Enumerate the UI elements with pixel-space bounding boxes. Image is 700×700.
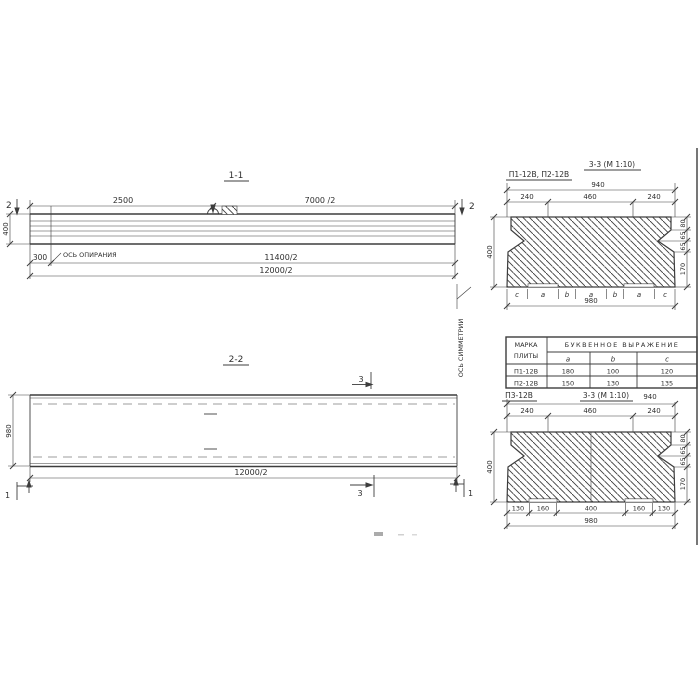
dim-top: 2500 7000 /2 [27, 196, 458, 214]
dim-label: 300 [33, 253, 48, 262]
cut-label: 3 [357, 489, 362, 498]
dim-label: 400 [2, 222, 10, 235]
seg-label: a [541, 291, 545, 299]
cell-mark: П1-12В [514, 368, 538, 376]
table-header-group: БУКВЕННОЕ ВЫРАЖЕНИЕ [565, 341, 680, 349]
section-2-2-title: 2-2 [229, 355, 244, 365]
dim-label: 980 [584, 297, 597, 305]
beam-elevation [30, 214, 455, 244]
dim-label: 980 [584, 517, 597, 525]
dim-bottom: 300 ОСЬ ОПИРАНИЯ 11400/2 12000/2 [27, 206, 458, 279]
recess-hatch [222, 206, 237, 215]
cell-a: 150 [562, 380, 574, 388]
dim-label: 240 [647, 193, 660, 201]
cut-mark-3-top: 3 [352, 372, 372, 389]
section-1-1-title: 1-1 [229, 171, 244, 181]
plate-marks-label: П1-12В, П2-12В [509, 170, 569, 179]
seg-label: a [637, 291, 641, 299]
dim-label: 240 [520, 407, 533, 415]
dim-label: 7000 /2 [305, 196, 336, 205]
table-row: П1-12В 180 100 120 [514, 368, 673, 376]
table-col-a: a [566, 356, 570, 364]
seg-label: b [613, 291, 618, 299]
dim-label: 130 [658, 505, 670, 513]
blueprint-sheet: 1-1 2500 7000 /2 [0, 0, 700, 700]
dim-label: 460 [583, 407, 596, 415]
dim-label: 240 [647, 407, 660, 415]
plate-mark-label: П3-12В [505, 391, 533, 400]
dim-plan-width: 980 [5, 392, 30, 469]
cell-c: 135 [661, 380, 673, 388]
section-1-1: 1-1 2500 7000 /2 [2, 171, 475, 279]
dim-label: 170 [679, 263, 687, 275]
cut-mark-1-right: 1 [450, 479, 473, 498]
cell-b: 130 [607, 380, 619, 388]
dim-980: 980 [504, 516, 678, 529]
dim-label: 80 [679, 219, 687, 227]
dim-label: 940 [643, 393, 656, 401]
cut-mark-3-bottom: 3 [350, 475, 374, 498]
dim-label: 940 [591, 181, 604, 189]
cross-section-shape [507, 217, 675, 287]
cut-mark-1-left: 1 [5, 481, 33, 500]
scan-smudge [374, 532, 417, 536]
marks-table: МАРКА ПЛИТЫ БУКВЕННОЕ ВЫРАЖЕНИЕ a b c П1… [506, 337, 697, 388]
slab-plan [30, 395, 457, 467]
dim-940 [504, 399, 678, 432]
dim-label: 2500 [113, 196, 133, 205]
dim-240-460-240: 240 460 240 [504, 193, 678, 217]
cut-label: 1 [468, 489, 473, 498]
cell-mark: П2-12В [514, 380, 538, 388]
dim-height: 400 [2, 211, 30, 247]
dim-label: 80 [679, 434, 687, 442]
cut-mark-2-right: 2 [460, 199, 475, 214]
symmetry-axis: ОСЬ СИММЕТРИИ [457, 284, 471, 377]
dim-label: 460 [583, 193, 596, 201]
table-col-b: b [611, 356, 616, 364]
section-3-3-bottom: П3-12В 3-3 (М 1:10) 940 240 460 240 [486, 391, 691, 529]
section-3-3-title: 3-3 (М 1:10) [583, 391, 629, 400]
dim-label: 240 [520, 193, 533, 201]
seg-label: b [565, 291, 570, 299]
table-header-col1: МАРКА [514, 341, 538, 349]
dim-label: 130 [512, 505, 524, 513]
cut-label: 1 [5, 491, 10, 500]
dim-label: 11400/2 [264, 253, 297, 262]
section-2-2: 2-2 980 [5, 284, 473, 500]
dim-plan-length: 12000/2 [27, 467, 460, 482]
cell-b: 100 [607, 368, 619, 376]
dim-label: 12000/2 [259, 266, 292, 275]
dim-label: 170 [679, 478, 687, 490]
section-3-3-top: П1-12В, П2-12В 3-3 (М 1:10) 940 240 460 … [486, 160, 691, 310]
table-col-c: c [665, 356, 669, 364]
table-header-col1: ПЛИТЫ [514, 352, 539, 360]
dim-bottom-row: 130 160 400 160 130 [504, 503, 678, 516]
dim-label: 65 [679, 446, 687, 454]
table-row: П2-12В 150 130 135 [514, 380, 673, 388]
dim-label: 65 [679, 231, 687, 239]
cell-a: 180 [562, 368, 574, 376]
dim-label: 160 [633, 505, 645, 513]
section-3-3-title: 3-3 (М 1:10) [589, 160, 635, 169]
symmetry-axis-label: ОСЬ СИММЕТРИИ [457, 319, 465, 378]
dim-label: 65 [679, 242, 687, 250]
dim-240-460-240: 240 460 240 [504, 407, 678, 432]
cell-c: 120 [661, 368, 673, 376]
dim-label: 400 [486, 460, 494, 473]
cut-label: 2 [469, 202, 475, 212]
dim-label: 980 [5, 424, 13, 437]
seg-label: c [515, 291, 519, 299]
dim-label: 65 [679, 457, 687, 465]
support-axis-label: ОСЬ ОПИРАНИЯ [63, 251, 117, 259]
dim-label: 12000/2 [234, 468, 267, 477]
cut-label: 3 [358, 375, 363, 384]
drawing-canvas: 1-1 2500 7000 /2 [0, 0, 700, 700]
cut-label: 2 [6, 201, 12, 211]
dim-980: 980 [504, 297, 678, 310]
dim-label: 400 [585, 505, 597, 513]
seg-label: c [663, 291, 667, 299]
dim-label: 400 [486, 245, 494, 258]
dim-label: 160 [537, 505, 549, 513]
